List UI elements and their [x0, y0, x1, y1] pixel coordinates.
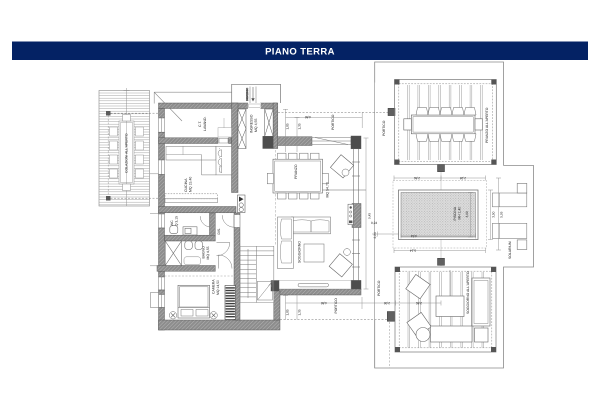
svg-text:WC: WC [170, 220, 174, 226]
svg-text:9,45: 9,45 [367, 213, 371, 219]
svg-text:MQ 15,40: MQ 15,40 [189, 177, 193, 192]
svg-text:MQ 4,55: MQ 4,55 [254, 119, 258, 132]
svg-text:C.T.: C.T. [198, 121, 202, 128]
svg-text:SOGGIORNO ALL'APERTO: SOGGIORNO ALL'APERTO [466, 271, 470, 314]
svg-text:COLAZIONI ALL'APERTO: COLAZIONI ALL'APERTO [125, 133, 129, 173]
svg-text:PORTICO: PORTICO [382, 120, 386, 136]
svg-text:CAMERA: CAMERA [212, 279, 216, 294]
svg-text:SOLARIUM: SOLARIUM [508, 241, 512, 259]
svg-text:0,24: 0,24 [371, 221, 377, 225]
svg-text:2,86: 2,86 [414, 176, 420, 180]
svg-text:4,80: 4,80 [305, 115, 311, 119]
svg-text:1,85: 1,85 [286, 309, 290, 315]
svg-text:MQ 54,70: MQ 54,70 [326, 182, 330, 197]
svg-text:PORTICO: PORTICO [334, 298, 338, 314]
svg-text:INGRESSO: INGRESSO [250, 114, 254, 133]
svg-text:1,85: 1,85 [286, 123, 290, 129]
svg-text:MQ 4,55: MQ 4,55 [206, 246, 210, 259]
svg-text:MH 1,40: MH 1,40 [458, 207, 462, 220]
svg-text:2,00: 2,00 [384, 301, 390, 305]
svg-text:1,35: 1,35 [297, 123, 301, 129]
svg-text:PORTICO: PORTICO [331, 114, 335, 130]
svg-text:PISCINA: PISCINA [453, 206, 457, 220]
svg-text:INGRESSO: INGRESSO [246, 88, 249, 101]
svg-text:PIANO TERRA: PIANO TERRA [265, 47, 335, 58]
svg-text:5,95: 5,95 [500, 211, 504, 217]
svg-text:MQ 14,50: MQ 14,50 [216, 280, 220, 295]
svg-text:4,54: 4,54 [411, 234, 417, 238]
svg-text:3,50: 3,50 [492, 211, 496, 217]
svg-text:PORTICO: PORTICO [377, 280, 381, 296]
svg-text:PRANZO ALL'APERTO: PRANZO ALL'APERTO [485, 107, 489, 143]
svg-text:2,24: 2,24 [373, 232, 377, 238]
svg-text:LAVAND.: LAVAND. [203, 117, 207, 131]
svg-text:SOGGIORNO: SOGGIORNO [298, 241, 302, 263]
svg-text:2,28: 2,28 [460, 176, 466, 180]
svg-text:1,35: 1,35 [297, 309, 301, 315]
svg-text:2,85: 2,85 [416, 301, 422, 305]
svg-text:5,14: 5,14 [410, 249, 416, 253]
svg-text:DIS.: DIS. [217, 228, 221, 235]
svg-text:PRANZO: PRANZO [294, 164, 298, 179]
svg-text:4,80: 4,80 [321, 301, 327, 305]
svg-text:CUCINA: CUCINA [184, 178, 188, 192]
svg-text:3,00: 3,00 [465, 211, 469, 217]
